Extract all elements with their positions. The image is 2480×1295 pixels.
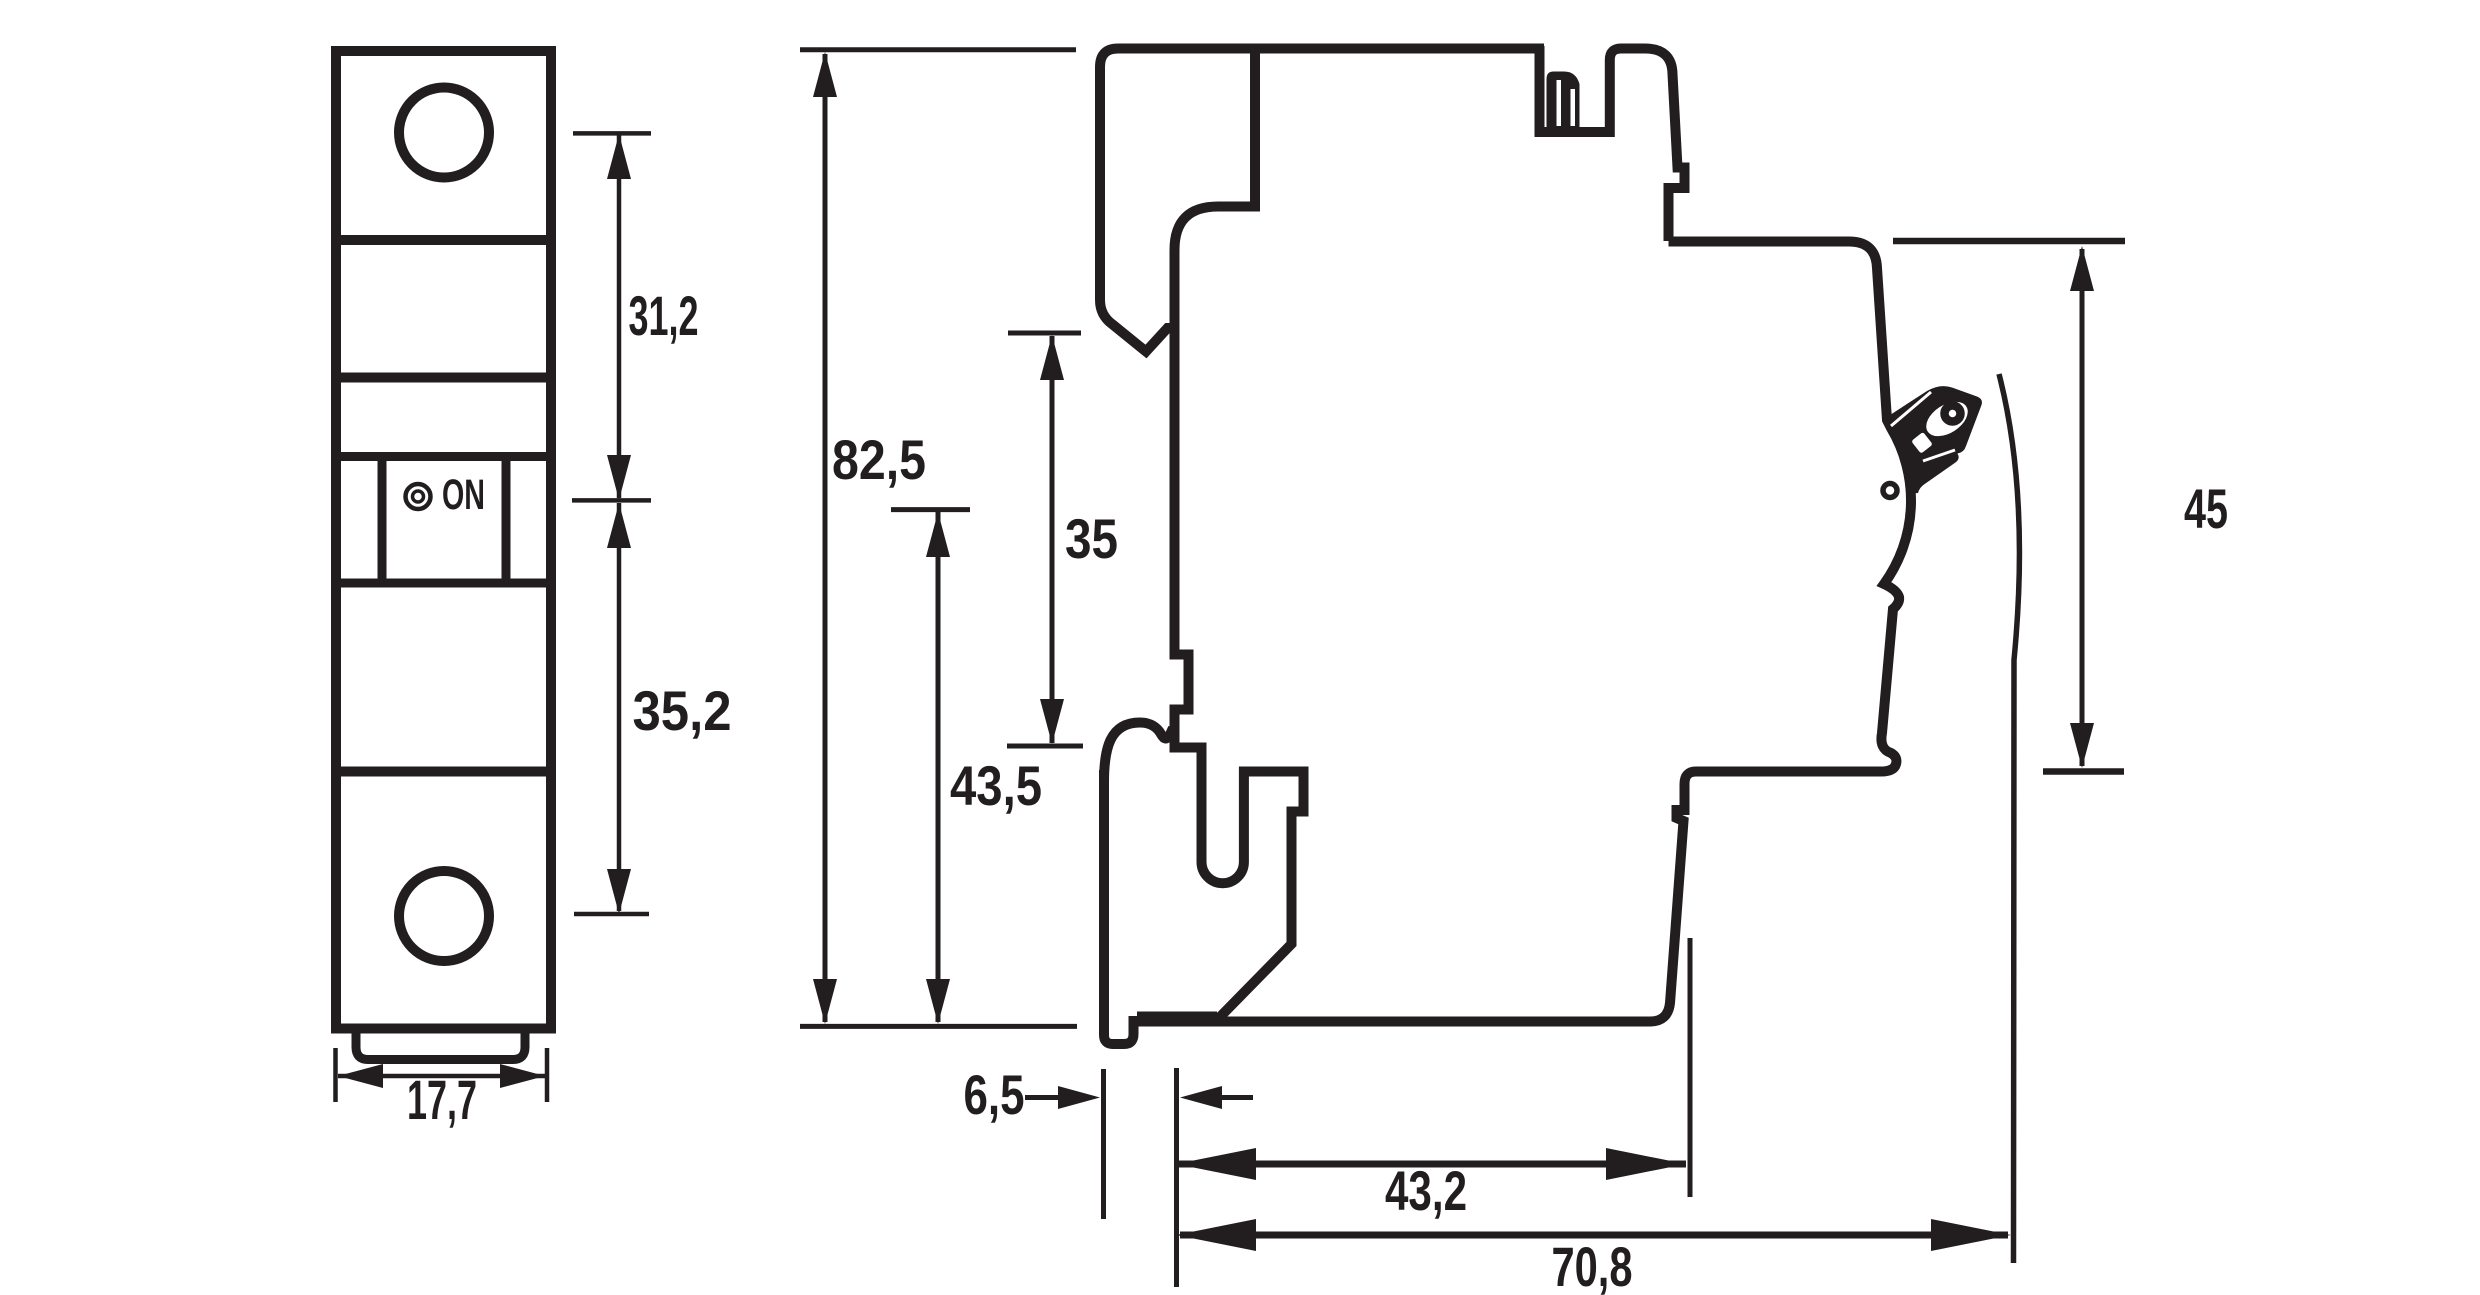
svg-text:ON: ON bbox=[442, 471, 485, 519]
svg-text:82,5: 82,5 bbox=[832, 428, 926, 491]
svg-text:43,5: 43,5 bbox=[950, 754, 1042, 817]
svg-text:45: 45 bbox=[2184, 477, 2228, 540]
svg-text:43,2: 43,2 bbox=[1385, 1159, 1467, 1222]
svg-text:17,7: 17,7 bbox=[407, 1068, 477, 1131]
svg-text:35: 35 bbox=[1065, 507, 1118, 570]
svg-text:35,2: 35,2 bbox=[633, 679, 732, 742]
svg-text:6,5: 6,5 bbox=[964, 1063, 1025, 1126]
svg-text:31,2: 31,2 bbox=[629, 284, 699, 347]
svg-text:70,8: 70,8 bbox=[1552, 1235, 1633, 1295]
